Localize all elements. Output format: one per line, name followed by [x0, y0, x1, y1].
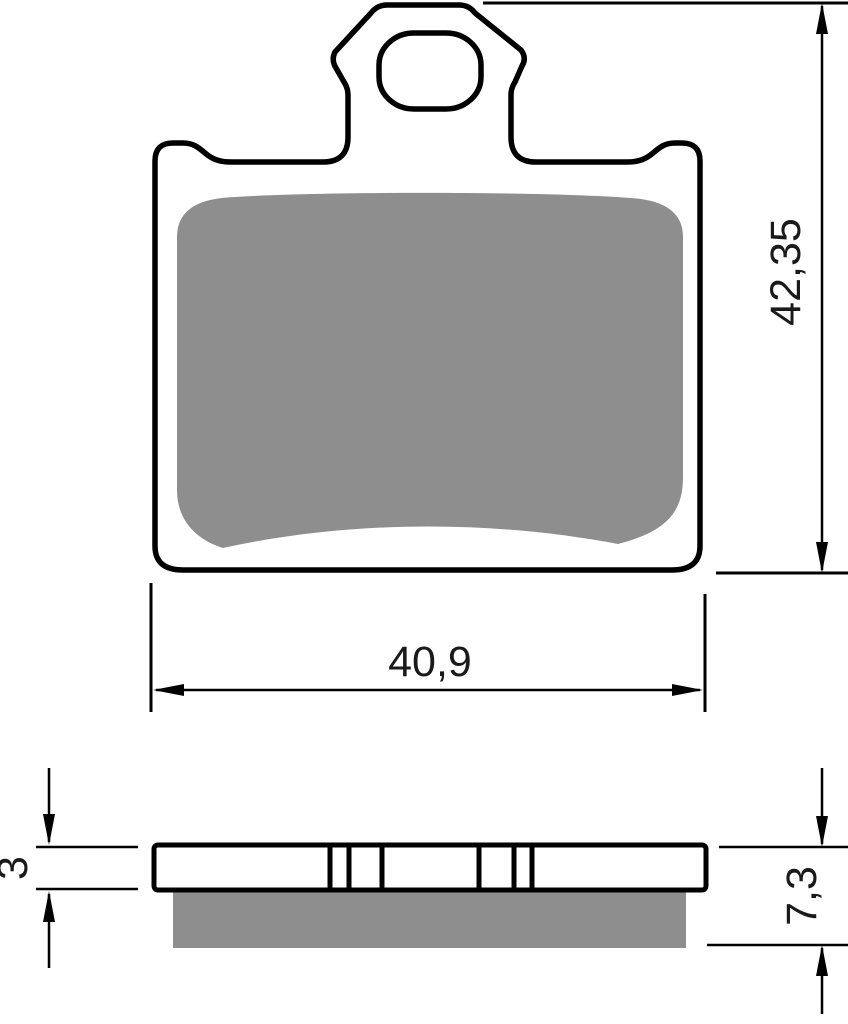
width-dimension: 40,9: [151, 583, 705, 712]
front-view: 42,35 40,9: [151, 3, 848, 712]
technical-drawing-canvas: 42,35 40,9: [0, 0, 848, 1024]
backplate-thickness-label: 3: [0, 856, 37, 880]
backplate-thickness-dimension: 3: [0, 768, 138, 968]
total-arrow-bottom: [816, 945, 828, 976]
tab-hole: [379, 33, 481, 109]
technical-drawing-page: 42,35 40,9: [0, 0, 848, 1024]
backplate-arrow-top: [43, 814, 55, 845]
height-dim-label: 42,35: [762, 218, 810, 326]
friction-material-front: [177, 193, 683, 548]
backplate-arrow-bottom: [43, 891, 55, 922]
backplate-side: [154, 845, 706, 890]
total-arrow-top: [816, 816, 828, 847]
height-arrow-bottom: [816, 542, 828, 573]
width-dim-label: 40,9: [388, 638, 472, 686]
side-view: 3 7,3: [0, 768, 848, 1014]
total-thickness-dimension: 7,3: [707, 768, 848, 1014]
width-arrow-right: [672, 684, 703, 696]
height-arrow-top: [816, 3, 828, 34]
total-thickness-label: 7,3: [778, 866, 826, 926]
friction-material-side: [173, 888, 686, 948]
width-arrow-left: [153, 684, 184, 696]
